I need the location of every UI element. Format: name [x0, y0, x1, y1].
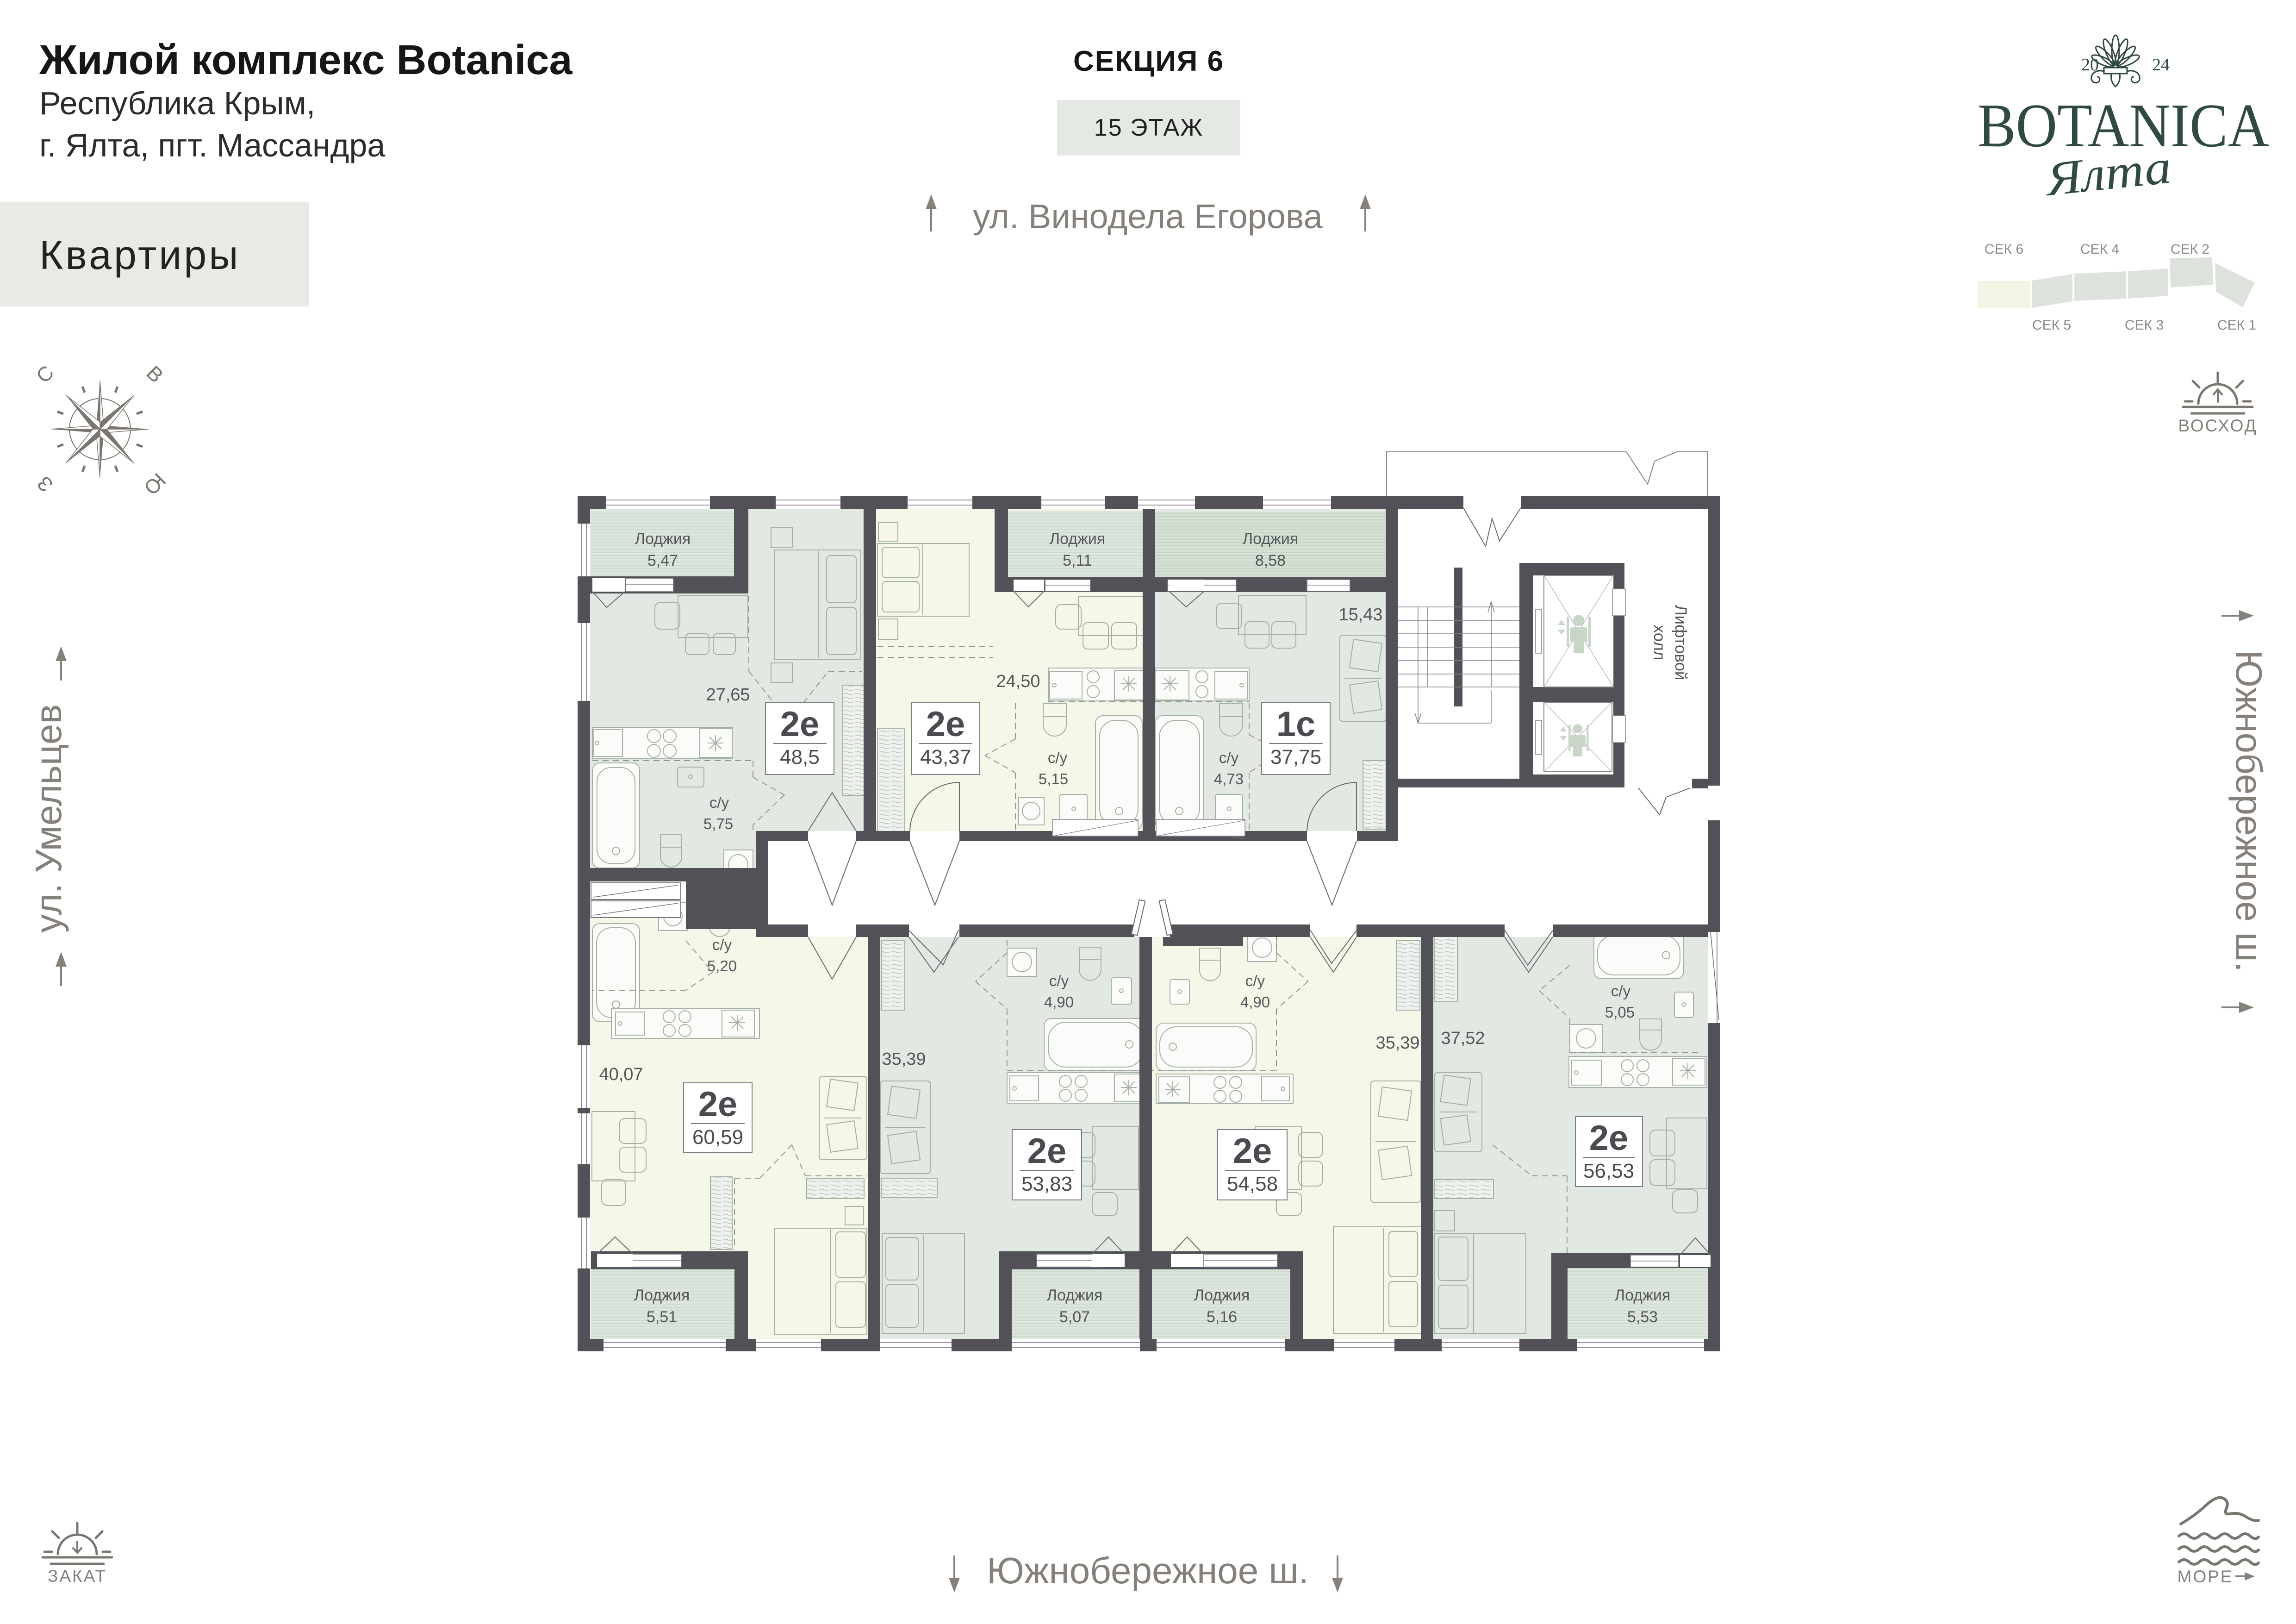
svg-text:27,65: 27,65 [706, 685, 750, 705]
svg-text:Лоджия: Лоджия [1194, 1287, 1250, 1304]
svg-text:2е: 2е [780, 705, 820, 744]
svg-text:Лоджия: Лоджия [1050, 530, 1105, 548]
svg-text:5,15: 5,15 [1039, 770, 1068, 787]
svg-text:Южнобережное ш.: Южнобережное ш. [987, 1550, 1309, 1591]
svg-text:37,52: 37,52 [1441, 1029, 1485, 1048]
svg-text:ул. Умельцев: ул. Умельцев [28, 704, 69, 933]
svg-text:4,90: 4,90 [1240, 993, 1270, 1011]
svg-text:5,53: 5,53 [1627, 1308, 1658, 1326]
svg-text:60,59: 60,59 [692, 1126, 743, 1149]
svg-text:с/у: с/у [1049, 972, 1069, 989]
svg-text:с/у: с/у [1048, 749, 1068, 766]
svg-text:СЕКЦИЯ 6: СЕКЦИЯ 6 [1073, 45, 1224, 77]
svg-text:Лифтовой: Лифтовой [1672, 605, 1690, 681]
svg-text:4,90: 4,90 [1044, 993, 1074, 1011]
svg-text:5,20: 5,20 [707, 957, 737, 974]
svg-text:35,39: 35,39 [882, 1049, 926, 1069]
svg-text:2е: 2е [1027, 1131, 1067, 1171]
svg-text:8,58: 8,58 [1255, 552, 1286, 569]
svg-text:ВОСХОД: ВОСХОД [2178, 416, 2257, 435]
svg-text:СЕК 5: СЕК 5 [2032, 318, 2071, 333]
svg-text:СЕК 4: СЕК 4 [2080, 242, 2119, 257]
svg-text:5,51: 5,51 [647, 1308, 677, 1326]
svg-text:5,75: 5,75 [703, 815, 733, 832]
svg-text:СЕК 6: СЕК 6 [1985, 242, 2023, 257]
svg-text:В: В [142, 362, 168, 387]
svg-text:С: С [32, 361, 58, 387]
svg-text:Республика Крым,: Республика Крым, [39, 85, 315, 121]
svg-text:2е: 2е [1589, 1118, 1629, 1158]
svg-text:Лоджия: Лоджия [1047, 1287, 1102, 1304]
svg-text:40,07: 40,07 [599, 1065, 643, 1084]
svg-text:З: З [33, 472, 57, 496]
svg-text:с/у: с/у [1219, 749, 1239, 766]
svg-text:с/у: с/у [1611, 982, 1631, 999]
svg-text:Квартиры: Квартиры [39, 232, 241, 278]
svg-text:с/у: с/у [1245, 972, 1265, 989]
svg-text:г. Ялта, пгт. Массандра: г. Ялта, пгт. Массандра [39, 127, 385, 163]
svg-text:холл: холл [1650, 625, 1668, 661]
svg-text:с/у: с/у [709, 794, 729, 811]
svg-text:24,50: 24,50 [996, 672, 1040, 691]
svg-text:53,83: 53,83 [1021, 1173, 1072, 1195]
svg-text:Южнобережное ш.: Южнобережное ш. [2228, 650, 2270, 972]
svg-text:5,11: 5,11 [1063, 552, 1092, 569]
svg-text:Жилой комплекс Botanica: Жилой комплекс Botanica [39, 37, 573, 83]
svg-text:ЗАКАТ: ЗАКАТ [48, 1567, 107, 1586]
svg-text:56,53: 56,53 [1583, 1160, 1634, 1182]
svg-text:1с: 1с [1276, 705, 1316, 744]
svg-text:2е: 2е [698, 1085, 738, 1124]
svg-text:48,5: 48,5 [780, 746, 820, 768]
svg-text:Ю: Ю [139, 468, 170, 499]
svg-text:Лоджия: Лоджия [1615, 1287, 1670, 1304]
svg-text:Лоджия: Лоджия [635, 530, 691, 548]
svg-text:Лоджия: Лоджия [634, 1287, 690, 1304]
svg-text:4,73: 4,73 [1214, 770, 1244, 787]
svg-text:5,07: 5,07 [1059, 1308, 1090, 1326]
svg-text:СЕК 2: СЕК 2 [2171, 242, 2209, 257]
svg-text:15 ЭТАЖ: 15 ЭТАЖ [1094, 114, 1203, 141]
svg-text:ул. Винодела Егорова: ул. Винодела Егорова [973, 197, 1323, 236]
svg-text:5,05: 5,05 [1605, 1004, 1635, 1021]
svg-text:43,37: 43,37 [920, 746, 971, 768]
svg-text:5,47: 5,47 [647, 552, 678, 569]
svg-text:Лоджия: Лоджия [1243, 530, 1298, 548]
svg-text:37,75: 37,75 [1270, 746, 1321, 768]
svg-text:2е: 2е [926, 705, 965, 744]
svg-text:СЕК 1: СЕК 1 [2217, 318, 2256, 333]
svg-text:2е: 2е [1233, 1131, 1272, 1171]
svg-text:24: 24 [2152, 55, 2170, 75]
svg-text:СЕК 3: СЕК 3 [2125, 318, 2164, 333]
svg-text:35,39: 35,39 [1375, 1033, 1419, 1053]
svg-text:54,58: 54,58 [1227, 1173, 1278, 1195]
svg-text:15,43: 15,43 [1338, 605, 1382, 625]
svg-text:5,16: 5,16 [1207, 1308, 1237, 1326]
svg-text:с/у: с/у [712, 936, 732, 953]
svg-text:МОРЕ: МОРЕ [2178, 1567, 2234, 1586]
